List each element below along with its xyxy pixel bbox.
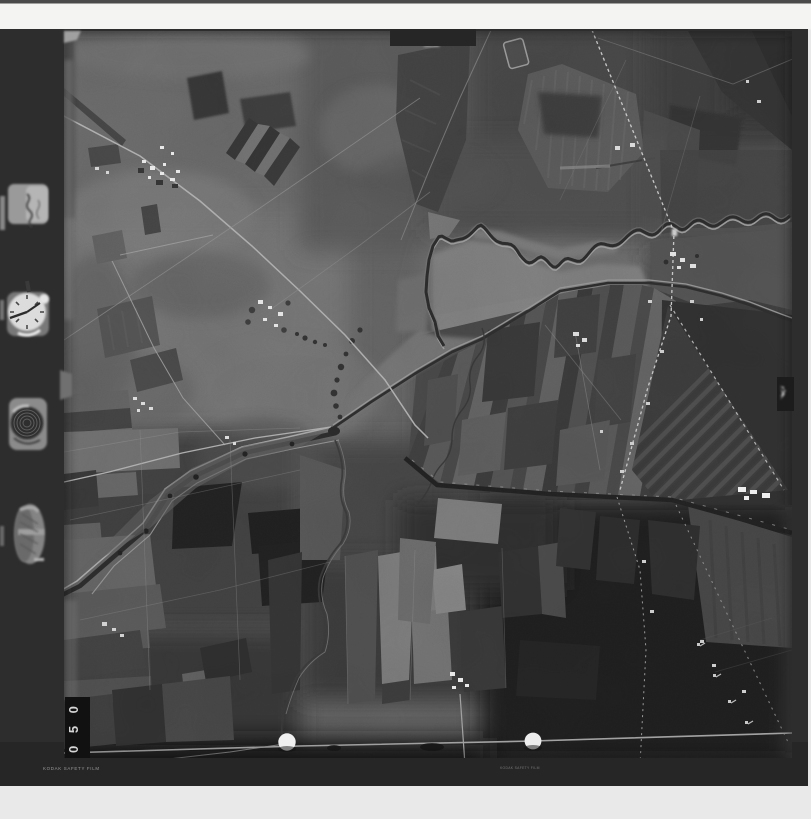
svg-text:KODAK SAFETY FILM: KODAK SAFETY FILM	[500, 766, 540, 770]
svg-text:0 5 0: 0 5 0	[66, 702, 81, 753]
svg-text:KODAK SAFETY FILM: KODAK SAFETY FILM	[43, 766, 100, 771]
